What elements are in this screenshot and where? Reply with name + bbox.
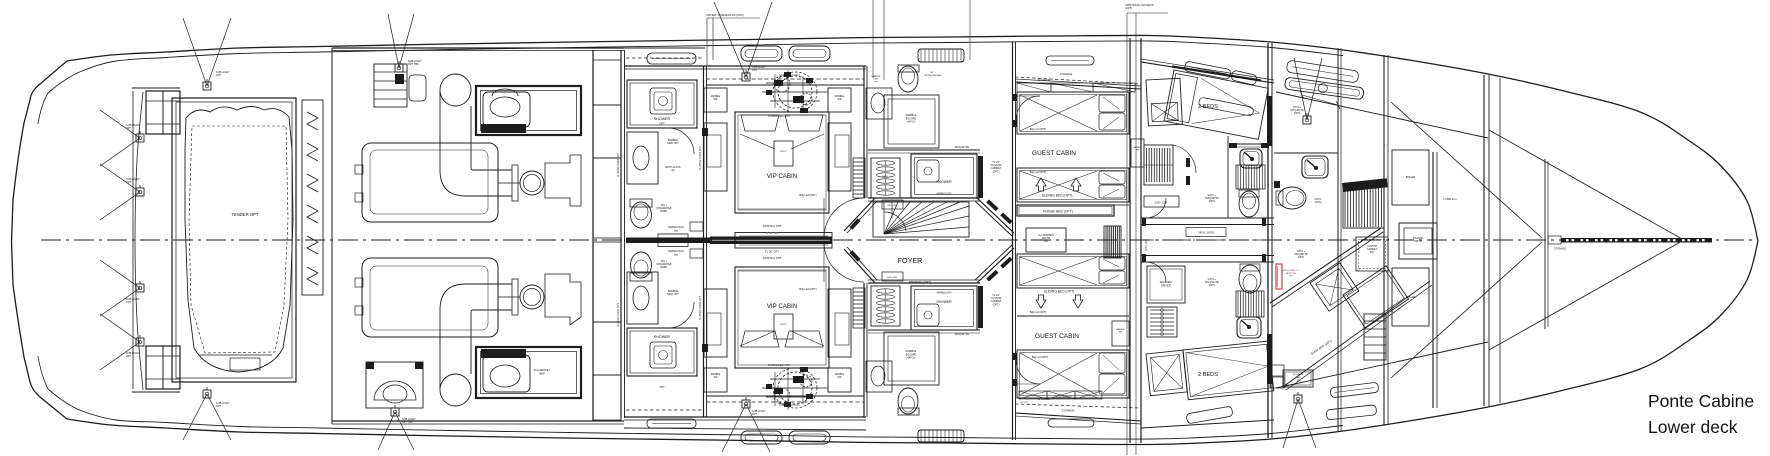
svg-text:OPT: OPT (216, 73, 222, 77)
svg-text:HATCH: HATCH (1414, 240, 1422, 243)
svg-text:OPT: OPT (659, 122, 665, 126)
svg-text:LIG OPT: LIG OPT (1020, 402, 1029, 404)
svg-text:MIRROR (OPT): MIRROR (OPT) (909, 281, 932, 285)
svg-text:SISTEMI. THRESHOLDS (UPG): SISTEMI. THRESHOLDS (UPG) (706, 13, 744, 17)
svg-text:VINYL (UPG): VINYL (UPG) (1198, 231, 1214, 235)
svg-text:CUSTOM: CUSTOM (1367, 246, 1377, 248)
svg-text:ADDITIONAL 17": ADDITIONAL 17" (1283, 269, 1300, 272)
svg-text:Bilg Led (OPT): Bilg Led (OPT) (799, 193, 816, 197)
svg-text:VIP CABIN: VIP CABIN (767, 303, 798, 310)
svg-text:MOQUETTE: MOQUETTE (955, 333, 969, 336)
svg-text:(OPT): (OPT) (1298, 257, 1304, 259)
svg-text:DRYER: DRYER (1161, 283, 1170, 287)
svg-text:SHOWER: SHOWER (936, 300, 952, 304)
svg-text:ATTUATOR: ATTUATOR (1038, 79, 1051, 82)
svg-text:(OPT): (OPT) (993, 170, 1000, 173)
svg-text:HEATED RAIL: HEATED RAIL (668, 250, 685, 253)
svg-text:GUEST CABIN: GUEST CABIN (1032, 150, 1076, 157)
svg-text:OPT TBV: OPT TBV (402, 420, 413, 424)
svg-text:BOILER: BOILER (1406, 175, 1416, 179)
svg-text:Bilg Led (OPT): Bilg Led (OPT) (1032, 356, 1049, 359)
svg-text:HEAT: HEAT (882, 175, 888, 178)
svg-text:2nd GENSET: 2nd GENSET (534, 368, 551, 372)
svg-text:MOQUETTE: MOQUETTE (955, 146, 969, 149)
svg-text:STOPSOL OPT: STOPSOL OPT (763, 224, 782, 228)
svg-text:VINYL +: VINYL + (1297, 251, 1306, 253)
svg-text:CABINET: CABINET (1367, 248, 1378, 251)
svg-text:Bilg Led (OPT): Bilg Led (OPT) (799, 287, 816, 291)
svg-text:MARBLE: MARBLE (835, 95, 845, 98)
svg-text:MARBLE: MARBLE (835, 373, 845, 376)
svg-text:STORAGE: STORAGE (1060, 72, 1073, 76)
svg-text:Bilg Led (OPT): Bilg Led (OPT) (1030, 128, 1047, 131)
svg-text:SLIDING DOOR OPT: SLIDING DOOR OPT (617, 303, 620, 328)
svg-text:SLIDING DOOR OPT: SLIDING DOOR OPT (617, 153, 620, 178)
svg-text:OPT: OPT (126, 180, 132, 184)
svg-text:(OPT): (OPT) (1209, 284, 1216, 287)
svg-text:OPT TBV: OPT TBV (408, 62, 419, 66)
svg-text:(HF): (HF) (1370, 252, 1375, 254)
svg-text:OPT: OPT (126, 354, 132, 358)
svg-text:Pullman BED (OPT): Pullman BED (OPT) (1043, 210, 1073, 214)
svg-text:opt: opt (1296, 379, 1299, 382)
svg-text:MONITOR: MONITOR (1286, 273, 1297, 275)
svg-text:OPT: OPT (126, 300, 132, 304)
svg-text:OPT: OPT (752, 68, 758, 72)
svg-text:SINK OPT: SINK OPT (667, 293, 679, 296)
svg-text:HATCH: HATCH (907, 120, 916, 124)
svg-text:WR: WR (838, 377, 842, 379)
svg-text:GUEST CABIN: GUEST CABIN (1035, 333, 1079, 340)
svg-text:Bilg Led (OPT): Bilg Led (OPT) (1030, 171, 1047, 174)
svg-text:(txt): (txt) (674, 254, 678, 257)
svg-text:MARBLE (UP): MARBLE (UP) (937, 292, 952, 295)
svg-text:(txt): (txt) (674, 230, 678, 233)
svg-text:BIDET: BIDET (660, 266, 668, 269)
svg-text:PHOTO: PHOTO (780, 324, 787, 326)
svg-text:STORAGE: STORAGE (1062, 409, 1075, 413)
svg-text:OPT: OPT (874, 81, 879, 83)
svg-text:MARBLE: MARBLE (711, 95, 721, 98)
svg-text:STORAGE: STORAGE (1293, 373, 1304, 376)
svg-text:PHOTO: PHOTO (780, 151, 787, 153)
svg-text:(UPG): (UPG) (1315, 201, 1322, 204)
svg-text:TV 50" OPT: TV 50" OPT (765, 250, 779, 254)
svg-text:Ponte Cabine: Ponte Cabine (1648, 391, 1754, 411)
svg-text:OPT: OPT (659, 385, 665, 389)
svg-text:9kW: 9kW (539, 371, 545, 375)
svg-text:H 800 mm: H 800 mm (1444, 197, 1458, 201)
svg-text:SLIDING DOOR OPT: SLIDING DOOR OPT (699, 296, 702, 321)
svg-text:SLIDING BED (OPT): SLIDING BED (OPT) (1044, 290, 1075, 294)
svg-text:SLIDING BED (OPT): SLIDING BED (OPT) (1042, 194, 1073, 198)
svg-text:(OPT): (OPT) (1294, 113, 1300, 115)
svg-text:MARBLE (UP): MARBLE (UP) (937, 193, 952, 196)
svg-text:STORAGE: STORAGE (1554, 248, 1566, 251)
svg-text:ATTUATOR: ATTUATOR (1038, 398, 1051, 401)
svg-text:TENDER OPT: TENDER OPT (232, 212, 259, 217)
svg-text:MOQUETTE: MOQUETTE (1290, 110, 1303, 112)
svg-text:VINYL +: VINYL + (1293, 107, 1302, 109)
svg-text:WC +: WC + (930, 72, 936, 74)
svg-text:OPT: OPT (126, 126, 132, 130)
svg-text:SHOWER: SHOWER (654, 117, 671, 121)
svg-text:Bilg Led (OPT): Bilg Led (OPT) (1030, 311, 1047, 314)
svg-text:MOQUETTE: MOQUETTE (1294, 254, 1307, 256)
svg-text:TV 50" OPT: TV 50" OPT (765, 231, 779, 235)
svg-text:WR: WR (714, 99, 718, 101)
svg-text:ATTREZZATURE: ATTREZZATURE (925, 74, 942, 77)
svg-text:(OPT): (OPT) (993, 303, 1000, 306)
svg-text:(OPT): (OPT) (1125, 6, 1132, 10)
svg-text:WR: WR (1136, 150, 1140, 152)
svg-text:OPT: OPT (216, 404, 222, 408)
svg-text:Lower deck: Lower deck (1648, 417, 1738, 437)
svg-text:Q.B h 900: Q.B h 900 (887, 277, 898, 279)
svg-text:BOILER: BOILER (1406, 295, 1416, 299)
svg-text:BIDET: BIDET (660, 210, 668, 213)
svg-text:opt: opt (671, 169, 675, 172)
svg-text:WASHER/: WASHER/ (1160, 280, 1173, 284)
svg-text:STABILIZER OPT: STABILIZER OPT (768, 114, 791, 118)
svg-text:STOPSOL OPT: STOPSOL OPT (763, 256, 782, 260)
svg-text:(OPT): (OPT) (1209, 200, 1216, 203)
svg-text:FOYER: FOYER (898, 256, 923, 265)
svg-text:8 DOOR H OPT: 8 DOOR H OPT (1056, 397, 1072, 399)
svg-text:Q.B h 900: Q.B h 900 (887, 205, 898, 207)
svg-text:SLIDING DOOR OPT: SLIDING DOOR OPT (699, 146, 702, 171)
svg-text:HATCH: HATCH (907, 356, 916, 360)
svg-text:WR: WR (714, 377, 718, 379)
svg-text:2 BEDS: 2 BEDS (1198, 372, 1218, 378)
svg-text:WR: WR (838, 99, 842, 101)
svg-text:SAFE: SAFE (1295, 376, 1301, 379)
svg-text:WR: WR (1119, 332, 1123, 334)
svg-text:OPT: OPT (1289, 276, 1294, 278)
svg-text:(txt): (txt) (1044, 240, 1048, 243)
svg-text:MARBLE: MARBLE (711, 373, 721, 376)
svg-text:SINK OPT: SINK OPT (667, 142, 679, 145)
svg-text:OPT/TB: OPT/TB (1042, 238, 1051, 240)
svg-text:SHOWER: SHOWER (936, 180, 952, 184)
svg-text:OPT: OPT (752, 412, 758, 416)
svg-text:HEATED RAIL: HEATED RAIL (668, 226, 685, 229)
svg-text:SINK: SINK (873, 79, 879, 81)
svg-text:SHOWER: SHOWER (654, 335, 671, 339)
svg-text:VIP CABIN: VIP CABIN (767, 173, 798, 180)
svg-text:N.2 WASHBKN: N.2 WASHBKN (1038, 234, 1054, 237)
